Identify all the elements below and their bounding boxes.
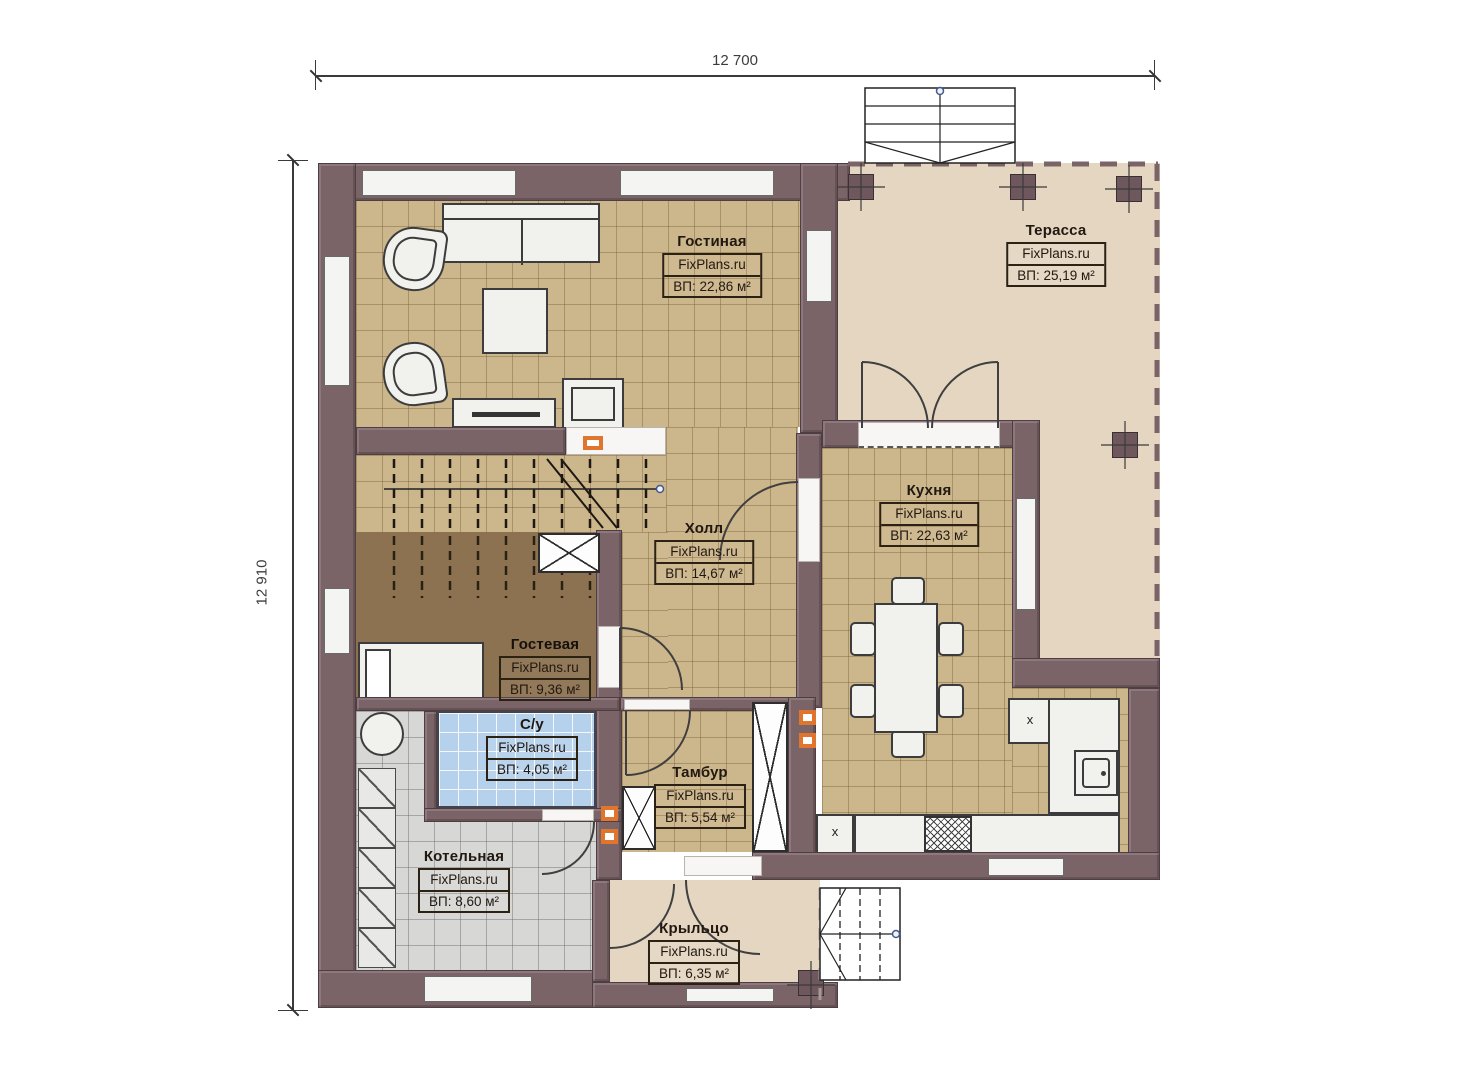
wall-hall-kitchen xyxy=(796,433,822,708)
room-area: ВП: 22,86 м² xyxy=(664,275,760,297)
room-area: ВП: 5,54 м² xyxy=(656,806,744,828)
terrace-floor xyxy=(838,163,1160,450)
shelf-unit xyxy=(358,888,396,928)
sofa-divider xyxy=(521,218,523,265)
room-label-hall: Холл FixPlans.ru ВП: 14,67 м² xyxy=(654,520,754,585)
watermark: FixPlans.ru xyxy=(656,542,752,562)
dimension-extension xyxy=(315,60,316,90)
shelf-unit xyxy=(358,928,396,968)
terrace-column xyxy=(1112,432,1138,458)
room-name: Гостевая xyxy=(499,636,591,653)
kitchen-counter-row xyxy=(854,814,1120,854)
door-opening-hall-kitchen xyxy=(798,478,820,562)
counter-mark: x xyxy=(822,824,848,839)
room-label-kitchen: Кухня FixPlans.ru ВП: 22,63 м² xyxy=(879,482,979,547)
terrace-column xyxy=(1116,176,1142,202)
room-name: Терасса xyxy=(1006,222,1106,239)
fireplace-cabinet xyxy=(562,378,624,430)
room-label-living: Гостиная FixPlans.ru ВП: 22,86 м² xyxy=(662,233,762,298)
room-info-box: FixPlans.ru ВП: 25,19 м² xyxy=(1006,242,1106,287)
window-top-right xyxy=(620,170,774,196)
stair-area-floor xyxy=(356,455,666,532)
door-opening-entrance xyxy=(684,856,762,876)
watermark: FixPlans.ru xyxy=(420,870,508,890)
terrace-column xyxy=(848,174,874,200)
dimension-line-top xyxy=(315,75,1155,77)
floor-plan-canvas: x x Гостиная FixPlans.ru ВП: 22,86 м² Те… xyxy=(0,0,1473,1080)
wall-bathroom-left xyxy=(424,711,437,822)
sink xyxy=(1074,750,1118,796)
coffee-table xyxy=(482,288,548,354)
window-left-living xyxy=(324,256,350,386)
radiator-marker xyxy=(799,710,816,725)
armchair-seat xyxy=(390,349,438,398)
watermark: FixPlans.ru xyxy=(664,255,760,275)
window-boiler-bottom xyxy=(424,976,532,1002)
room-label-guest: Гостевая FixPlans.ru ВП: 9,36 м² xyxy=(499,636,591,701)
watermark: FixPlans.ru xyxy=(501,658,589,678)
door-opening-kitchen-terrace xyxy=(858,422,1000,448)
room-area: ВП: 8,60 м² xyxy=(420,890,508,912)
terrace-stairs xyxy=(865,88,1015,164)
dimension-height-label: 12 910 xyxy=(254,543,271,623)
wall-kitchen-bottom xyxy=(752,852,1160,880)
room-area: ВП: 6,35 м² xyxy=(650,962,738,984)
dining-chair xyxy=(850,684,876,718)
room-label-bathroom: С/у FixPlans.ru ВП: 4,05 м² xyxy=(486,716,578,781)
radiator-marker xyxy=(601,806,618,821)
dining-chair xyxy=(891,577,925,605)
dimension-line-left xyxy=(292,160,294,1010)
shelf-unit xyxy=(358,808,396,848)
wall-living-hall xyxy=(356,427,566,455)
window-kitchen-terrace xyxy=(1016,498,1036,610)
opening-living-hall xyxy=(566,427,666,455)
window-living-terrace xyxy=(806,230,832,302)
room-info-box: FixPlans.ru ВП: 22,86 м² xyxy=(662,253,762,298)
terrace-floor-strip xyxy=(1040,450,1160,658)
room-info-box: FixPlans.ru ВП: 8,60 м² xyxy=(418,868,510,913)
bed xyxy=(358,642,484,702)
shelf-unit xyxy=(358,768,396,808)
room-label-porch: Крыльцо FixPlans.ru ВП: 6,35 м² xyxy=(648,920,740,985)
room-info-box: FixPlans.ru ВП: 5,54 м² xyxy=(654,784,746,829)
room-info-box: FixPlans.ru ВП: 6,35 м² xyxy=(648,940,740,985)
dining-chair xyxy=(938,622,964,656)
room-info-box: FixPlans.ru ВП: 22,63 м² xyxy=(879,502,979,547)
watermark: FixPlans.ru xyxy=(488,738,576,758)
room-name: Тамбур xyxy=(654,764,746,781)
dimension-extension xyxy=(278,160,308,161)
room-area: ВП: 14,67 м² xyxy=(656,562,752,584)
ventilation-shaft xyxy=(538,533,600,573)
dining-chair xyxy=(938,684,964,718)
room-info-box: FixPlans.ru ВП: 4,05 м² xyxy=(486,736,578,781)
door-opening-guest xyxy=(598,626,620,688)
room-area: ВП: 25,19 м² xyxy=(1008,264,1104,286)
vestibule-closet xyxy=(622,786,656,850)
radiator-marker xyxy=(799,733,816,748)
window-kitchen-bottom xyxy=(988,858,1064,876)
fireplace-inner xyxy=(571,387,615,421)
shelf-unit xyxy=(358,848,396,888)
tv-stand xyxy=(452,398,556,428)
room-name: С/у xyxy=(486,716,578,733)
room-area: ВП: 4,05 м² xyxy=(488,758,576,780)
watermark: FixPlans.ru xyxy=(650,942,738,962)
room-name: Гостиная xyxy=(662,233,762,250)
room-area: ВП: 22,63 м² xyxy=(881,524,977,546)
watermark: FixPlans.ru xyxy=(656,786,744,806)
tv-soundbar xyxy=(472,412,540,417)
radiator-marker xyxy=(583,436,603,450)
room-name: Холл xyxy=(654,520,754,537)
terrace-column xyxy=(1010,174,1036,200)
watermark: FixPlans.ru xyxy=(1008,244,1104,264)
door-opening-bathroom xyxy=(542,809,594,821)
boiler-tank xyxy=(360,712,404,756)
dining-table xyxy=(874,603,938,733)
porch-column xyxy=(798,970,824,996)
vestibule-closet xyxy=(752,702,788,852)
sink-faucet xyxy=(1101,771,1106,776)
room-label-boiler: Котельная FixPlans.ru ВП: 8,60 м² xyxy=(418,848,510,913)
dimension-extension xyxy=(1154,60,1155,90)
stove xyxy=(924,816,972,852)
room-area: ВП: 9,36 м² xyxy=(501,678,589,700)
room-info-box: FixPlans.ru ВП: 14,67 м² xyxy=(654,540,754,585)
bed-pillow xyxy=(365,649,391,699)
window-top-left xyxy=(362,170,516,196)
armchair-seat xyxy=(390,234,438,283)
room-info-box: FixPlans.ru ВП: 9,36 м² xyxy=(499,656,591,701)
dining-chair xyxy=(891,730,925,758)
radiator-marker xyxy=(601,829,618,844)
wall-terrace-bottom xyxy=(1012,658,1160,688)
window-left-guest xyxy=(324,588,350,654)
room-label-vestibule: Тамбур FixPlans.ru ВП: 5,54 м² xyxy=(654,764,746,829)
window-porch-bottom xyxy=(686,988,774,1002)
room-name: Котельная xyxy=(418,848,510,865)
porch-stairs xyxy=(820,888,900,980)
counter-mark: x xyxy=(1017,712,1043,727)
dimension-width-label: 12 700 xyxy=(315,52,1155,69)
watermark: FixPlans.ru xyxy=(881,504,977,524)
sofa xyxy=(442,203,600,263)
room-label-terrace: Терасса FixPlans.ru ВП: 25,19 м² xyxy=(1006,222,1106,287)
door-opening-hall-vestibule xyxy=(624,699,690,710)
dining-chair xyxy=(850,622,876,656)
dimension-extension xyxy=(278,1010,308,1011)
room-name: Крыльцо xyxy=(648,920,740,937)
wall-porch-left xyxy=(592,880,610,982)
room-name: Кухня xyxy=(879,482,979,499)
